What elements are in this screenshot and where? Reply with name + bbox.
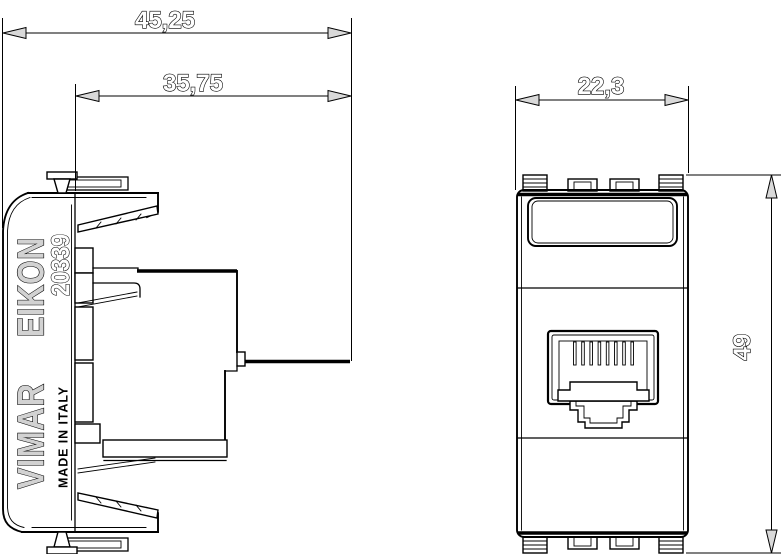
plain-tab [568,537,597,549]
arrowhead-left-icon [3,28,26,39]
bottom-clip-stem [54,532,70,547]
side-view: EIKON 20339 VIMAR MADE IN ITALY [3,172,350,554]
rj45-jack [548,331,658,428]
terminal-block [75,363,93,422]
side-bottom-clip [47,532,128,554]
top-clip-stem [54,179,70,193]
made-in-engraving: MADE IN ITALY [56,386,71,488]
arrowhead-right-icon [328,28,351,39]
dimension-label-module-width: 22,3 [578,73,625,100]
side-rear-body [75,248,350,473]
arrowhead-down-icon [766,530,777,553]
dimension-label-total-depth: 45,25 [135,7,195,34]
arrowhead-left-icon [76,91,99,102]
terminal-block [75,273,93,303]
rj45-module-dimensional-drawing: EIKON 20339 VIMAR MADE IN ITALY [0,0,783,554]
model-engraving: 20339 [47,234,75,296]
front-bottom-clips [523,537,683,553]
side-top-clip [47,172,128,193]
bottom-support-arm [78,493,158,518]
dimension-label-module-height: 49 [729,334,756,361]
dimension-module-width: 22,3 [516,73,689,190]
bottom-clip-bar [47,547,77,554]
latch-slot-upper [558,382,649,401]
arrowhead-right-icon [665,95,688,106]
front-top-clips [523,175,683,191]
terminal-block [75,424,100,443]
arrowhead-up-icon [766,175,777,198]
series-engraving: EIKON [11,237,52,337]
dimension-body-depth: 35,75 [76,70,352,191]
body-rear-step [225,366,237,371]
body-top-step [93,268,138,271]
body-bottom-block [103,440,227,457]
top-support-arm [78,206,158,232]
plain-tab [610,537,639,549]
front-view [517,175,688,553]
arrowhead-right-icon [328,91,351,102]
top-window-inner [532,201,673,243]
top-window-outer [528,198,677,246]
technical-drawing-canvas: EIKON 20339 VIMAR MADE IN ITALY [0,0,783,554]
arrowhead-left-icon [516,95,539,106]
top-clip-bar [47,172,77,179]
body-upper-detail [93,283,140,297]
terminal-block [75,248,93,273]
dimension-label-body-depth: 35,75 [163,70,223,97]
latch-slot-lower [570,401,637,428]
dimension-module-height: 49 [686,175,781,553]
rear-tab [237,352,245,366]
brand-engraving: VIMAR [11,383,52,489]
terminal-block [75,307,93,360]
